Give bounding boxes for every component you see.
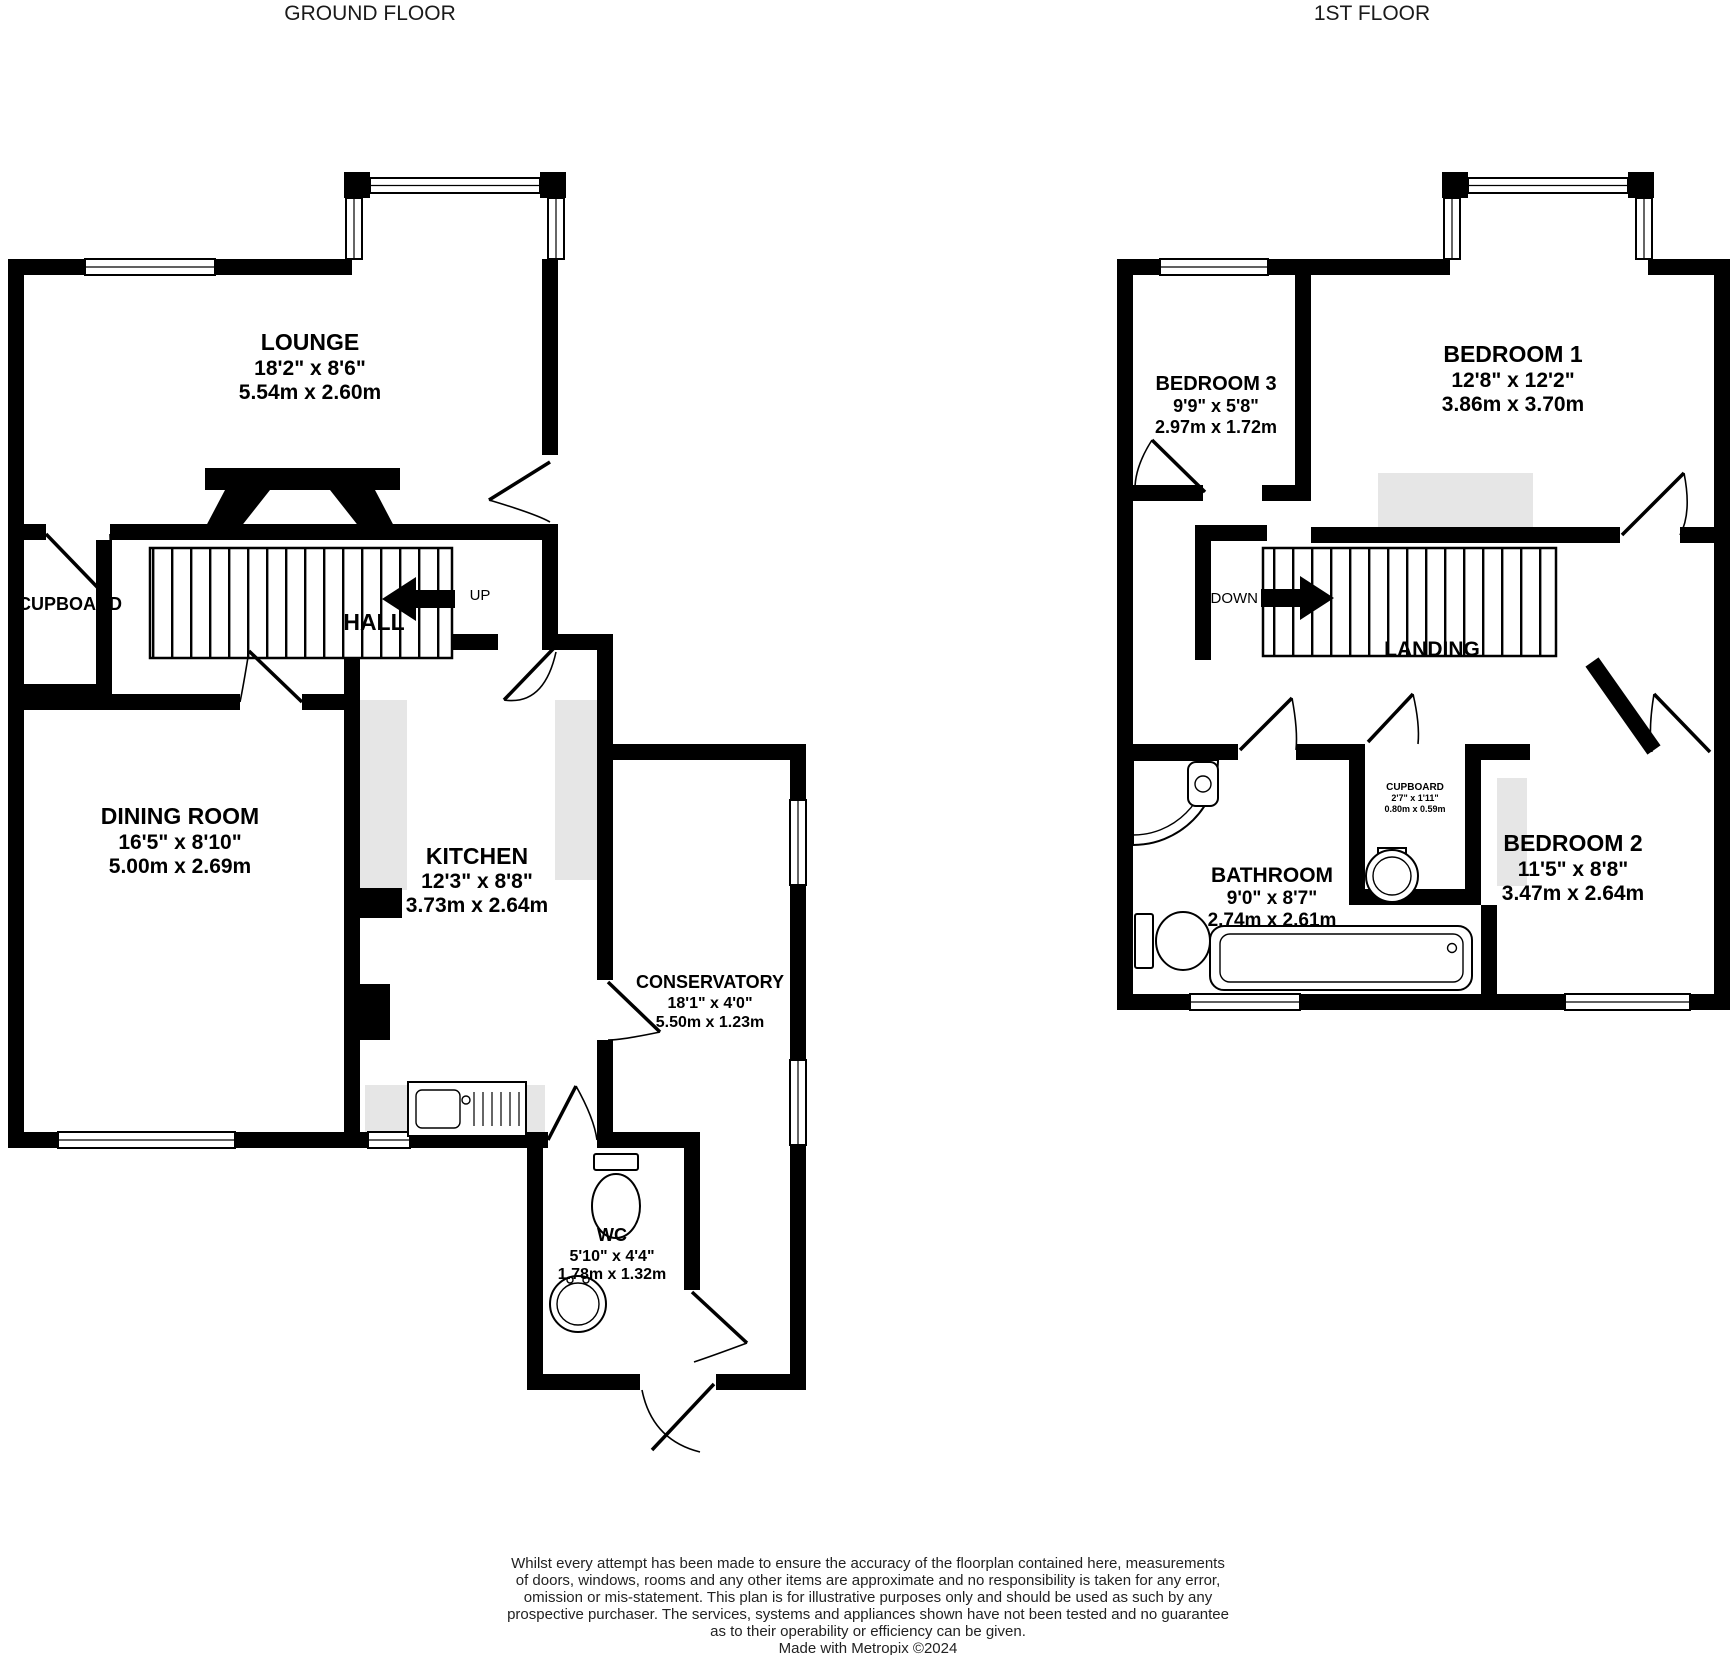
diagonal-wall	[1592, 662, 1654, 750]
cupboard-label: CUPBOARD	[18, 594, 122, 614]
wall	[1465, 744, 1481, 905]
wc-conservatory-door-arc	[694, 1343, 747, 1362]
wall	[1349, 744, 1365, 905]
kitchen-label: KITCHEN	[426, 843, 528, 869]
wall	[527, 1374, 640, 1390]
wall	[716, 1374, 806, 1390]
wall	[1295, 259, 1311, 501]
bay-post	[1442, 172, 1468, 198]
bathtub	[1210, 926, 1472, 990]
disclaimer-line: omission or mis-statement. This plan is …	[524, 1589, 1213, 1606]
kitchen-door-leaf	[504, 648, 554, 700]
down-label: DOWN	[1211, 590, 1259, 607]
disclaimer-line: Whilst every attempt has been made to en…	[511, 1555, 1225, 1572]
fireplace	[205, 468, 400, 528]
disclaimer-credit: Made with Metropix ©2024	[779, 1640, 958, 1655]
wall	[1195, 525, 1211, 660]
hall-label: HALL	[343, 609, 404, 635]
kitchen-counter-right	[555, 700, 597, 880]
wall	[1481, 905, 1497, 994]
landing-label: LANDING	[1384, 638, 1480, 661]
bedroom1-wardrobe	[1378, 473, 1533, 527]
toilet-cistern	[1135, 914, 1153, 968]
up-label: UP	[470, 587, 491, 604]
lounge-metric: 5.54m x 2.60m	[239, 381, 381, 404]
floorplan-svg: GROUND FLOOR	[0, 0, 1736, 1655]
disclaimer-line: as to their operability or efficiency ca…	[710, 1623, 1026, 1640]
lounge-bay-window	[344, 172, 566, 259]
kitchen-sink	[408, 1082, 526, 1136]
kitchen-metric: 3.73m x 2.64m	[406, 894, 548, 917]
wall	[1714, 259, 1730, 1010]
wall	[527, 1148, 543, 1390]
wall	[1349, 889, 1481, 905]
conservatory-imperial: 18'1" x 4'0"	[667, 995, 752, 1012]
bedroom2-label: BEDROOM 2	[1503, 830, 1642, 856]
bedroom2-imperial: 11'5" x 8'8"	[1518, 858, 1629, 881]
bedroom1-metric: 3.86m x 3.70m	[1442, 393, 1584, 416]
wc-label: WC	[597, 1225, 627, 1245]
toilet-cistern	[594, 1154, 638, 1170]
lounge-label: LOUNGE	[261, 329, 359, 355]
lounge-door-arc	[489, 500, 550, 522]
wall	[597, 650, 613, 980]
chimney-jog	[360, 984, 390, 1040]
cupboard-metric: 0.80m x 0.59m	[1384, 804, 1445, 814]
wc-imperial: 5'10" x 4'4"	[569, 1248, 654, 1265]
wall	[1680, 527, 1714, 543]
wall	[558, 634, 613, 650]
fireplace-bar	[205, 468, 400, 490]
dining-room-label: DINING ROOM	[101, 803, 259, 829]
wall	[597, 1040, 613, 1148]
bedroom3-label: BEDROOM 3	[1155, 373, 1276, 395]
cupboard-label: CUPBOARD	[1386, 782, 1444, 793]
ground-floor-plan: GROUND FLOOR	[8, 2, 806, 1452]
conservatory-door-arc	[608, 1032, 660, 1040]
disclaimer-line: of doors, windows, rooms and any other i…	[516, 1572, 1221, 1589]
wall	[344, 650, 360, 1148]
shower-sink-unit	[1188, 762, 1218, 806]
exterior-door-arc	[642, 1390, 700, 1452]
bay-post	[1628, 172, 1654, 198]
bathroom-imperial: 9'0" x 8'7"	[1227, 888, 1317, 909]
wc-basin	[550, 1276, 606, 1332]
wc-door-arc	[576, 1086, 597, 1140]
wall	[1117, 744, 1238, 760]
kitchen-imperial: 12'3" x 8'8"	[421, 870, 533, 893]
dining-room-imperial: 16'5" x 8'10"	[118, 831, 241, 854]
wc-door-leaf	[548, 1086, 576, 1140]
wc-door-opening	[548, 1132, 597, 1148]
bedroom1-bay-window	[1442, 172, 1654, 259]
exterior-door-leaf	[652, 1384, 714, 1450]
lounge-door-leaf	[489, 462, 550, 500]
bedroom1-door-leaf	[1622, 473, 1684, 535]
bay-post	[540, 172, 566, 198]
bedroom1-label: BEDROOM 1	[1443, 341, 1583, 367]
bathroom-metric: 2.74m x 2.61m	[1208, 910, 1337, 931]
bedroom3-metric: 2.97m x 1.72m	[1155, 417, 1277, 437]
lounge-imperial: 18'2" x 8'6"	[254, 357, 366, 380]
conservatory-metric: 5.50m x 1.23m	[656, 1014, 765, 1031]
bedroom3-door-leaf	[1152, 440, 1205, 492]
bedroom2-door-leaf	[1654, 694, 1710, 752]
cupboard-door-leaf	[1368, 694, 1413, 742]
wc-metric: 1.78m x 1.32m	[558, 1266, 667, 1283]
wall	[684, 1148, 700, 1290]
wall	[613, 744, 806, 760]
ground-floor-title: GROUND FLOOR	[284, 2, 456, 25]
first-floor-plan: 1ST FLOOR	[1117, 2, 1730, 1010]
kitchen-counter-left	[360, 700, 407, 890]
wc-conservatory-door-leaf	[692, 1292, 747, 1343]
first-floor-title: 1ST FLOOR	[1314, 2, 1430, 25]
fireplace-pier-right	[330, 490, 395, 528]
wall	[8, 259, 24, 1148]
wall	[1117, 259, 1133, 1010]
bathroom-label: BATHROOM	[1211, 864, 1333, 887]
cupboard-imperial: 2'7" x 1'11"	[1391, 793, 1438, 803]
floorplan-page: GROUND FLOOR	[0, 0, 1736, 1655]
wall	[8, 524, 46, 540]
bathroom-door-arc	[1292, 698, 1297, 750]
conservatory-label: CONSERVATORY	[636, 972, 784, 992]
bedroom3-door-arc	[1135, 440, 1152, 492]
wall	[110, 524, 558, 540]
wall	[1311, 527, 1620, 543]
fireplace-pier-left	[205, 490, 270, 528]
wall	[542, 524, 558, 650]
wall	[1133, 485, 1203, 501]
chimney-jog	[360, 888, 402, 918]
ground-floor-stairs	[150, 548, 455, 658]
toilet-bowl	[1156, 912, 1210, 970]
bathroom-door-leaf	[1240, 698, 1292, 750]
bedroom2-metric: 3.47m x 2.64m	[1502, 882, 1644, 905]
dining-room-metric: 5.00m x 2.69m	[109, 855, 251, 878]
disclaimer: Whilst every attempt has been made to en…	[507, 1555, 1229, 1655]
cupboard-door-leaf	[46, 534, 100, 590]
bedroom3-imperial: 9'9" x 5'8"	[1173, 396, 1259, 416]
wall	[24, 694, 240, 710]
bedroom1-imperial: 12'8" x 12'2"	[1451, 369, 1574, 392]
pedestal-basin	[1366, 850, 1418, 902]
wall	[1262, 485, 1311, 501]
wall	[542, 259, 558, 455]
bay-post	[344, 172, 370, 198]
bedroom1-door-arc	[1680, 473, 1687, 535]
disclaimer-line: prospective purchaser. The services, sys…	[507, 1606, 1229, 1623]
cupboard-door-arc	[1413, 694, 1418, 744]
